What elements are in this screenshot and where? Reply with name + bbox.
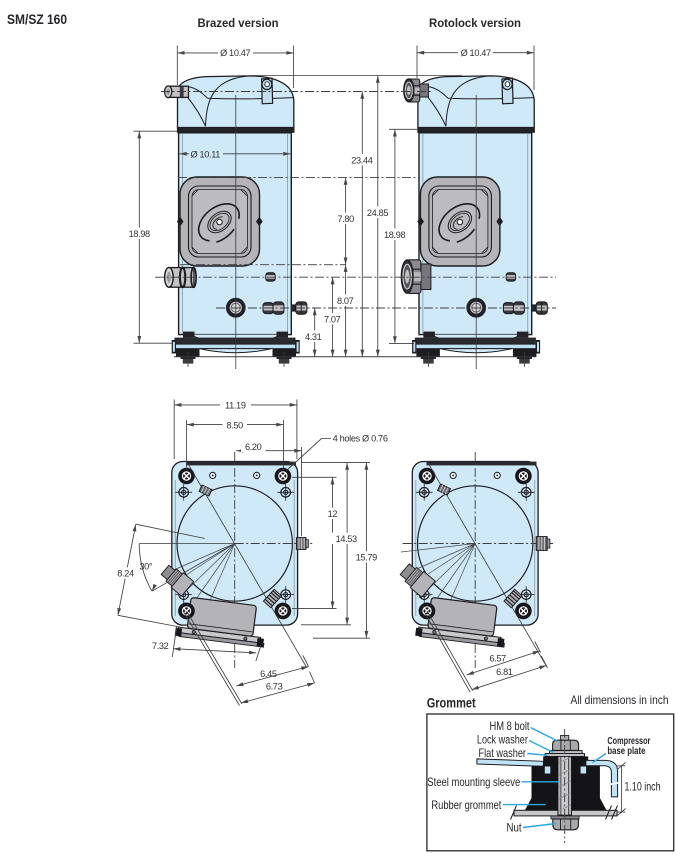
svg-text:15.79: 15.79 — [356, 553, 377, 563]
svg-text:18.98: 18.98 — [384, 230, 405, 240]
svg-text:Nut: Nut — [507, 821, 523, 835]
svg-text:11.19: 11.19 — [225, 401, 246, 411]
svg-text:8.50: 8.50 — [226, 420, 243, 430]
svg-text:base plate: base plate — [607, 745, 645, 757]
svg-text:Flat washer: Flat washer — [479, 746, 527, 760]
svg-text:Steel mounting sleeve: Steel mounting sleeve — [427, 775, 520, 789]
svg-text:Lock washer: Lock washer — [477, 733, 528, 747]
svg-text:30°: 30° — [139, 561, 153, 571]
svg-text:6.45: 6.45 — [260, 669, 277, 679]
svg-text:Rotolock version: Rotolock version — [429, 18, 521, 30]
svg-text:7.07: 7.07 — [324, 315, 341, 325]
svg-text:HM 8 bolt: HM 8 bolt — [490, 719, 531, 733]
svg-text:4.31: 4.31 — [305, 332, 322, 342]
svg-text:Ø 10.47: Ø 10.47 — [220, 48, 250, 58]
svg-text:All dimensions in inch: All dimensions in inch — [571, 693, 669, 707]
svg-text:Grommet: Grommet — [427, 696, 476, 711]
svg-text:18.98: 18.98 — [129, 229, 150, 239]
svg-text:8.24: 8.24 — [117, 569, 134, 579]
svg-text:14.53: 14.53 — [336, 534, 357, 544]
svg-text:6.73: 6.73 — [266, 682, 283, 692]
svg-text:6.81: 6.81 — [496, 667, 513, 677]
svg-text:24.85: 24.85 — [367, 208, 388, 218]
svg-text:Ø 10.47: Ø 10.47 — [461, 48, 491, 58]
svg-text:8.07: 8.07 — [337, 296, 354, 306]
svg-text:4 holes Ø 0.76: 4 holes Ø 0.76 — [333, 433, 388, 443]
svg-text:7.32: 7.32 — [152, 641, 169, 651]
svg-text:Brazed version: Brazed version — [198, 18, 279, 30]
svg-text:6.57: 6.57 — [489, 653, 506, 663]
svg-text:SM/SZ 160: SM/SZ 160 — [7, 12, 67, 27]
svg-text:Rubber grommet: Rubber grommet — [431, 798, 502, 812]
svg-text:7.80: 7.80 — [337, 214, 354, 224]
svg-text:1.10 inch: 1.10 inch — [625, 780, 661, 794]
svg-text:12: 12 — [328, 509, 338, 519]
svg-text:Ø 10.11: Ø 10.11 — [191, 149, 221, 159]
svg-text:23.44: 23.44 — [351, 156, 372, 166]
svg-text:6.20: 6.20 — [245, 442, 262, 452]
